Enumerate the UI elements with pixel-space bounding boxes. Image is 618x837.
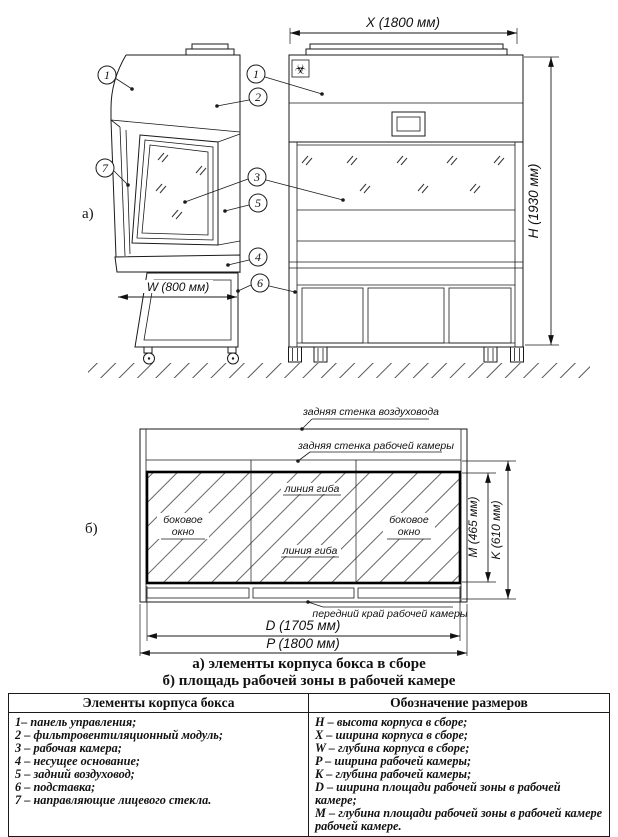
svg-text:1: 1 [104, 68, 110, 82]
dim-chamber-width: P (1800 мм) [266, 636, 340, 651]
side-window-label-right-2: окно [398, 526, 421, 538]
view-a-label: а) [82, 206, 94, 222]
dim-chamber-depth: K (610 мм) [489, 500, 503, 559]
bend-line-label-top: линия гиба [284, 483, 340, 495]
front-grille [253, 588, 354, 598]
caster-leg [228, 347, 236, 353]
svg-text:4: 4 [255, 250, 261, 264]
chamber-back-wall-label: задняя стенка рабочей камеры [297, 440, 454, 452]
view-b-label: б) [85, 521, 98, 537]
caster-leg [144, 347, 152, 353]
side-base [115, 255, 240, 272]
technical-drawing: W (800 мм) а) ☣ [0, 0, 618, 656]
side-window-label-left-2: окно [172, 526, 195, 538]
biohazard-icon: ☣ [295, 63, 307, 78]
svg-text:1: 1 [253, 67, 259, 81]
table-header-dimensions: Обозначение размеров [309, 694, 609, 713]
caption-a: а) элементы корпуса бокса в сборе [0, 656, 618, 673]
front-view: ☣ [289, 15, 560, 362]
stand-panel [368, 288, 444, 343]
side-window-label-left-1: боковое [163, 514, 203, 526]
svg-text:5: 5 [255, 196, 261, 210]
svg-text:3: 3 [253, 170, 260, 184]
table-column-dimensions: H – высота корпуса в сборе; X – ширина к… [309, 713, 609, 836]
dim-height-overall: H (1930 мм) [526, 164, 541, 239]
figure-caption: а) элементы корпуса бокса в сборе б) пло… [0, 656, 618, 690]
side-window-glass [142, 145, 208, 235]
front-grille [147, 588, 249, 598]
plan-view: линия гиба линия гиба боковое окно боков… [85, 406, 516, 656]
dim-work-zone-width: D (1705 мм) [266, 618, 341, 633]
table-column-elements: 1– панель управления; 2 – фильтровентиля… [9, 713, 309, 836]
exhaust-collar [186, 49, 234, 55]
svg-text:2: 2 [255, 90, 261, 104]
bend-line-label-bottom: линия гиба [282, 545, 338, 557]
dim-depth-overall: W (800 мм) [147, 280, 209, 294]
side-window-label-right-1: боковое [389, 514, 429, 526]
duct-back-wall-label: задняя стенка воздуховода [302, 406, 439, 418]
front-feet [289, 347, 524, 362]
front-collar [306, 49, 507, 55]
stand-panel [302, 288, 363, 343]
dim-work-zone-depth: M (465 мм) [466, 496, 480, 557]
dimension-item-d: D – ширина площади рабочей зоны в рабоче… [315, 781, 604, 807]
dimension-item-m: M – глубина площади рабочей зоны в рабоч… [315, 807, 604, 833]
front-body [289, 55, 523, 347]
side-view: W (800 мм) а) [82, 44, 240, 364]
svg-text:7: 7 [102, 161, 109, 175]
legend-table: Элементы корпуса бокса Обозначение разме… [8, 693, 610, 837]
front-collar-top [310, 44, 503, 49]
svg-text:6: 6 [257, 276, 263, 290]
element-item-7: 7 – направляющие лицевого стекла. [15, 794, 303, 807]
exhaust-collar-top [192, 44, 228, 49]
stand-panel [449, 288, 511, 343]
front-grille [358, 588, 460, 598]
table-header-elements: Элементы корпуса бокса [9, 694, 309, 713]
caption-b: б) площадь рабочей зоны в рабочей камере [0, 673, 618, 690]
ground-hatch [88, 363, 590, 378]
dim-width-overall: X (1800 мм) [365, 15, 440, 30]
